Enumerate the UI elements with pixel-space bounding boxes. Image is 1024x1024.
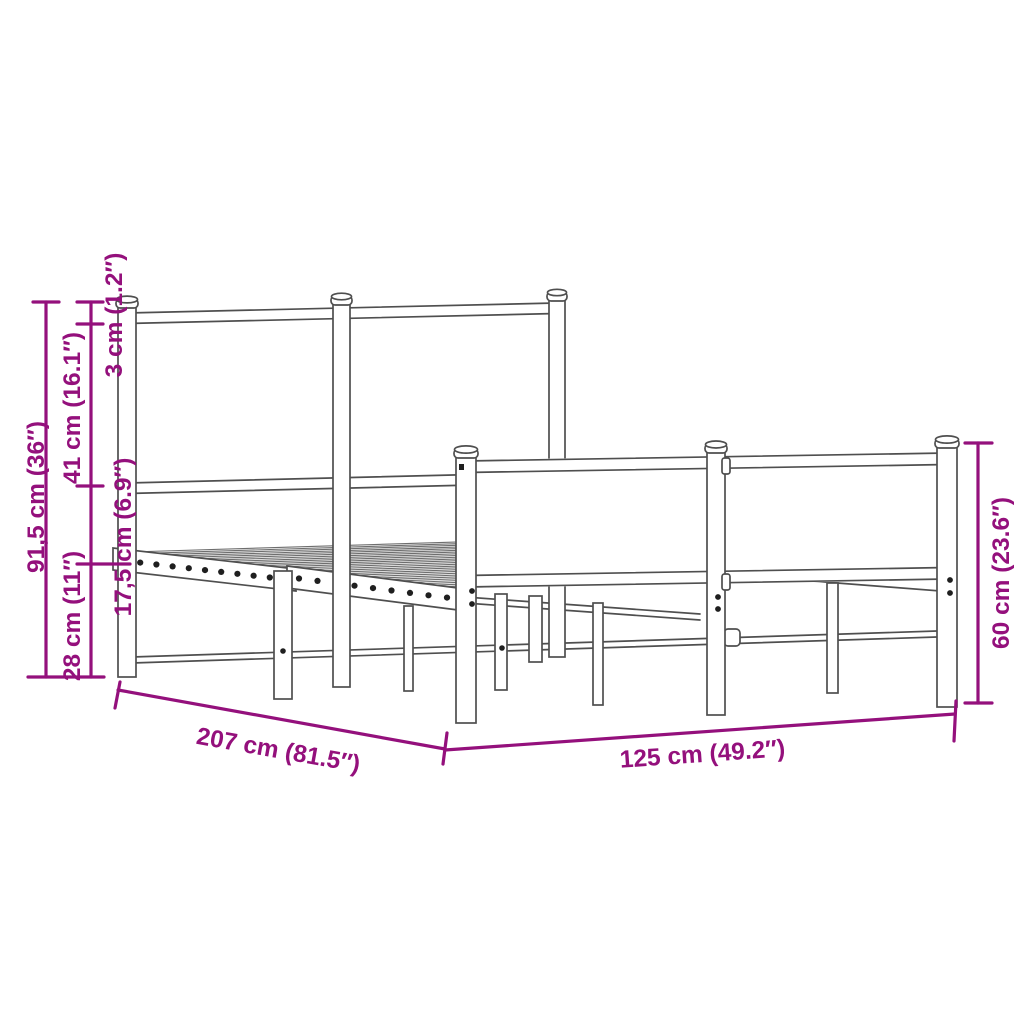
dim-label-overall-height: 91,5 cm (36″)	[23, 421, 50, 573]
headboard-post	[333, 303, 350, 687]
rail-bracket	[722, 574, 730, 590]
footboard	[454, 436, 959, 723]
support-leg	[593, 603, 603, 705]
support-leg	[274, 571, 292, 699]
support-leg	[529, 596, 542, 662]
dim-label-top-rail-thickness: 3 cm (1.2″)	[101, 253, 128, 378]
dim-label-side-rail-height: 17,5 cm (6.9″)	[110, 458, 137, 617]
bed-frame-dimension-drawing: 91,5 cm (36″) 41 cm (16.1″) 28 cm (11″) …	[0, 0, 1024, 1024]
dim-label-headboard-upper: 41 cm (16.1″)	[59, 332, 86, 484]
dim-label-bed-length: 207 cm (81.5″)	[194, 723, 362, 778]
dimension-left-stack: 41 cm (16.1″) 28 cm (11″) 3 cm (1.2″) 17…	[59, 253, 137, 682]
dim-label-ground-clearance: 28 cm (11″)	[59, 551, 86, 681]
dim-label-footboard-height: 60 cm (23.6″)	[988, 497, 1015, 649]
rail-bracket	[722, 458, 730, 474]
dimension-footboard-height: 60 cm (23.6″)	[965, 443, 1015, 703]
dimension-bed-width: 125 cm (49.2″)	[445, 701, 956, 774]
dim-label-bed-width: 125 cm (49.2″)	[619, 735, 786, 773]
support-leg	[404, 606, 413, 691]
support-leg	[827, 583, 838, 693]
footboard-post	[937, 446, 957, 707]
underframe	[132, 571, 937, 705]
brace-sleeve	[724, 629, 740, 646]
support-leg	[495, 594, 507, 690]
product-dimension-diagram: 91,5 cm (36″) 41 cm (16.1″) 28 cm (11″) …	[0, 0, 1024, 1024]
